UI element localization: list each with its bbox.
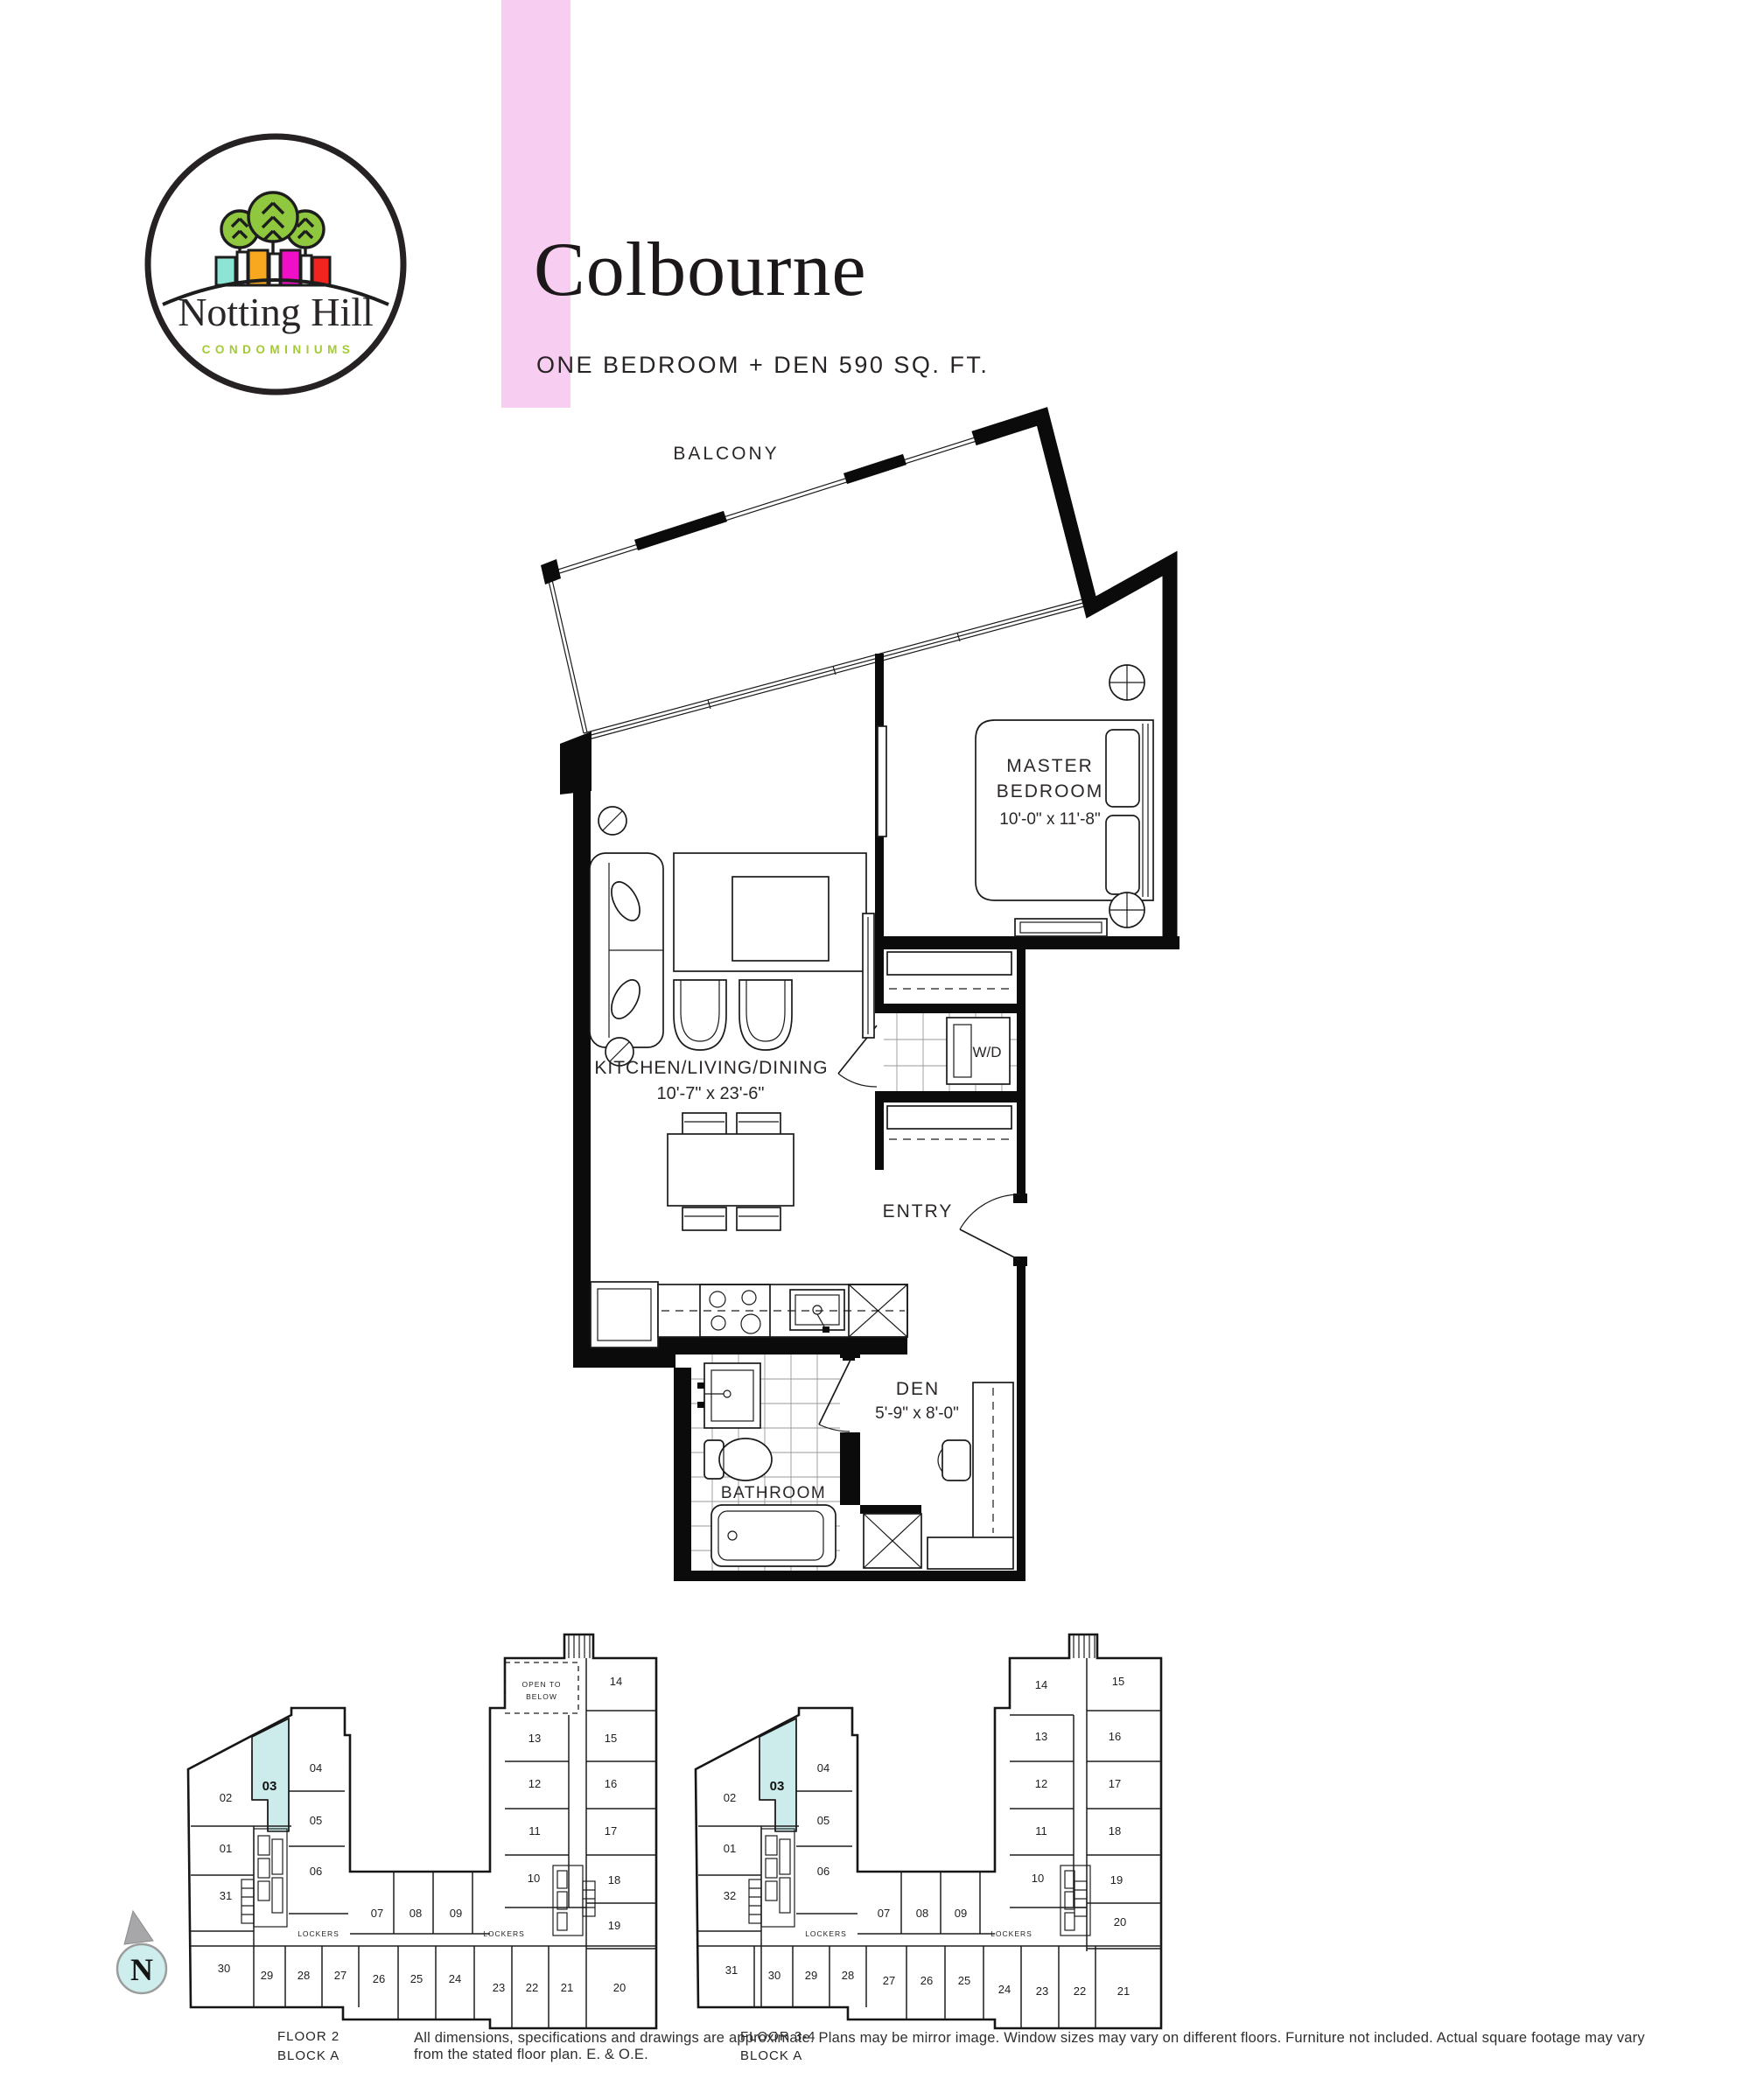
compass-label: N [130, 1952, 153, 1987]
unit-number-19: 19 [608, 1919, 620, 1932]
unit-number-20: 20 [613, 1981, 626, 1994]
unit-number-02: 02 [724, 1791, 736, 1804]
pink-accent-stripe [501, 0, 570, 408]
unit-number-01: 01 [220, 1842, 232, 1855]
unit-number-19: 19 [1110, 1873, 1123, 1886]
unit-number-27: 27 [883, 1974, 895, 1987]
unit-number-05: 05 [817, 1814, 829, 1827]
unit-number-31: 31 [220, 1889, 232, 1902]
unit-number-27: 27 [334, 1969, 346, 1982]
unit-number-12: 12 [528, 1777, 541, 1790]
unit-number-03: 03 [770, 1779, 785, 1794]
kitchen-living-dining-label: KITCHEN/LIVING/DINING [594, 1058, 828, 1078]
unit-number-16: 16 [605, 1777, 617, 1790]
dining-set [668, 1113, 794, 1230]
unit-number-22: 22 [1074, 1984, 1086, 1998]
unit-number-04: 04 [817, 1761, 829, 1774]
unit-number-15: 15 [605, 1732, 617, 1745]
unit-number-12: 12 [1035, 1777, 1047, 1790]
unit-number-14: 14 [610, 1675, 622, 1688]
unit-floorplan: BALCONY MASTER BEDROOM 10'-0" x 11'-8" K… [525, 376, 1225, 1610]
unit-number-07: 07 [878, 1907, 890, 1920]
unit-number-29: 29 [261, 1969, 273, 1982]
keyplan-block-label: BLOCK A [277, 2048, 339, 2063]
unit-number-30: 30 [218, 1962, 230, 1975]
unit-number-17: 17 [1109, 1777, 1121, 1790]
unit-number-02: 02 [220, 1791, 232, 1804]
washer-dryer-label: W/D [972, 1044, 1001, 1060]
unit-number-03: 03 [262, 1779, 277, 1794]
unit-number-24: 24 [449, 1972, 461, 1985]
armchairs [674, 980, 792, 1050]
unit-number-17: 17 [605, 1824, 617, 1837]
master-bedroom-dim: 10'-0" x 11'-8" [999, 810, 1100, 829]
unit-number-11: 11 [1035, 1824, 1047, 1837]
unit-number-20: 20 [1114, 1915, 1126, 1928]
unit-number-11: 11 [528, 1824, 541, 1837]
keyplan-floor-label: FLOOR 2 [277, 2029, 339, 2044]
master-bedroom-label-2: BEDROOM [997, 781, 1104, 801]
unit-number-21: 21 [1117, 1984, 1130, 1998]
unit-number-06: 06 [310, 1865, 322, 1878]
unit-number-26: 26 [920, 1974, 933, 1987]
entry-door [960, 1194, 1020, 1260]
unit-number-30: 30 [768, 1969, 780, 1982]
bathroom-label: BATHROOM [721, 1484, 826, 1502]
unit-number-23: 23 [1036, 1984, 1048, 1998]
unit-number-28: 28 [842, 1969, 854, 1982]
den-dim: 5'-9" x 8'-0" [875, 1404, 959, 1423]
unit-number-28: 28 [297, 1969, 310, 1982]
unit-number-09: 09 [450, 1907, 462, 1920]
unit-number-32: 32 [724, 1889, 736, 1902]
logo-tagline: CONDOMINIUMS [202, 343, 355, 356]
lockers-label-left: LOCKERS [297, 1929, 339, 1938]
unit-number-25: 25 [958, 1974, 970, 1987]
lockers-label-left: LOCKERS [805, 1929, 847, 1938]
unit-number-26: 26 [373, 1972, 385, 1985]
lockers-label-right: LOCKERS [483, 1929, 525, 1938]
kitchen-living-dining-dim: 10'-7" x 23'-6" [656, 1084, 764, 1103]
compass-needle-icon [124, 1911, 153, 1944]
page-subtitle: ONE BEDROOM + DEN 590 SQ. FT. [536, 352, 989, 379]
unit-number-05: 05 [310, 1814, 322, 1827]
keyplan-floor-2: OPEN TO BELOW LOCKERS LOCKERS 0203040501… [114, 1619, 674, 2074]
unit-number-31: 31 [725, 1963, 738, 1977]
unit-number-24: 24 [998, 1983, 1011, 1996]
unit-number-10: 10 [1032, 1872, 1044, 1885]
disclaimer-text: All dimensions, specifications and drawi… [414, 2030, 1674, 2063]
unit-number-09: 09 [955, 1907, 967, 1920]
unit-number-01: 01 [724, 1842, 736, 1855]
unit-number-06: 06 [817, 1865, 829, 1878]
keyplan-floor-3-4: LOCKERS LOCKERS 020304050132060708091013… [684, 1619, 1244, 2074]
floorplan-page: Notting Hill CONDOMINIUMS Colbourne ONE … [0, 0, 1750, 2100]
north-arrow: N [103, 1906, 191, 2011]
bathroom-fixtures [697, 1353, 855, 1566]
unit-number-16: 16 [1109, 1730, 1121, 1743]
master-bedroom-label-1: MASTER [1006, 756, 1094, 776]
unit-number-21: 21 [561, 1981, 573, 1994]
unit-number-13: 13 [1035, 1730, 1047, 1743]
unit-number-07: 07 [371, 1907, 383, 1920]
unit-number-04: 04 [310, 1761, 322, 1774]
balcony-label: BALCONY [673, 444, 779, 464]
kitchen [591, 1282, 907, 1347]
unit-number-08: 08 [409, 1907, 422, 1920]
unit-number-13: 13 [528, 1732, 541, 1745]
unit-number-22: 22 [526, 1981, 538, 1994]
unit-number-15: 15 [1112, 1675, 1124, 1688]
notting-hill-logo: Notting Hill CONDOMINIUMS [131, 122, 420, 411]
unit-number-08: 08 [916, 1907, 928, 1920]
unit-number-18: 18 [1109, 1824, 1121, 1837]
open-to-below-2: BELOW [526, 1692, 557, 1701]
unit-number-18: 18 [608, 1873, 620, 1886]
unit-number-23: 23 [493, 1981, 505, 1994]
unit-number-25: 25 [410, 1972, 423, 1985]
unit-number-14: 14 [1035, 1678, 1047, 1691]
unit-number-29: 29 [805, 1969, 817, 1982]
sofa [590, 853, 663, 1047]
logo-wordmark: Notting Hill [178, 290, 374, 334]
lockers-label-right: LOCKERS [990, 1929, 1032, 1938]
unit-number-10: 10 [528, 1872, 540, 1885]
open-to-below-1: OPEN TO [522, 1680, 562, 1689]
page-title: Colbourne [534, 226, 867, 314]
den-label: DEN [896, 1379, 940, 1399]
entry-label: ENTRY [883, 1201, 954, 1221]
coffee-table [732, 877, 829, 961]
